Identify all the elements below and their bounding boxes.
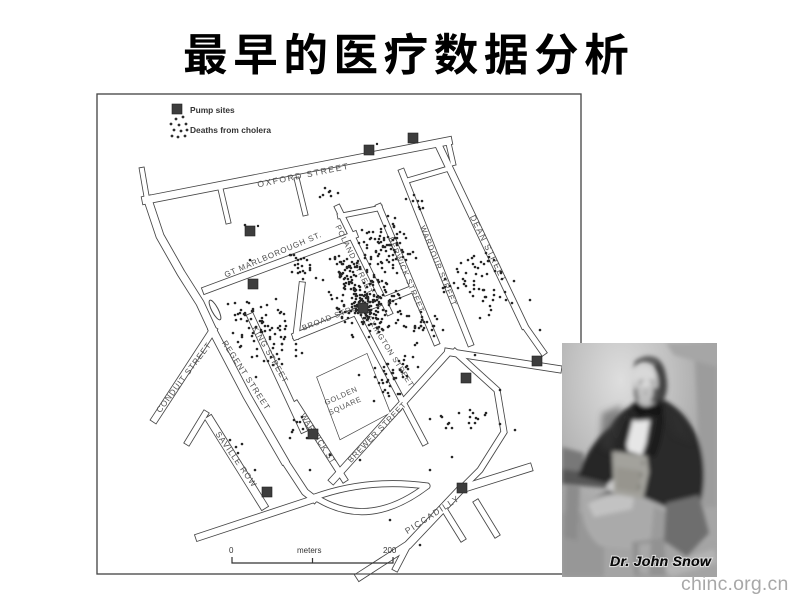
svg-text:Dr. John Snow: Dr. John Snow bbox=[610, 554, 712, 570]
svg-text:200: 200 bbox=[383, 546, 397, 555]
svg-text:0: 0 bbox=[229, 546, 234, 555]
svg-text:meters: meters bbox=[297, 546, 321, 555]
svg-text:Pump sites: Pump sites bbox=[190, 105, 235, 115]
svg-text:Deaths from cholera: Deaths from cholera bbox=[190, 125, 271, 135]
